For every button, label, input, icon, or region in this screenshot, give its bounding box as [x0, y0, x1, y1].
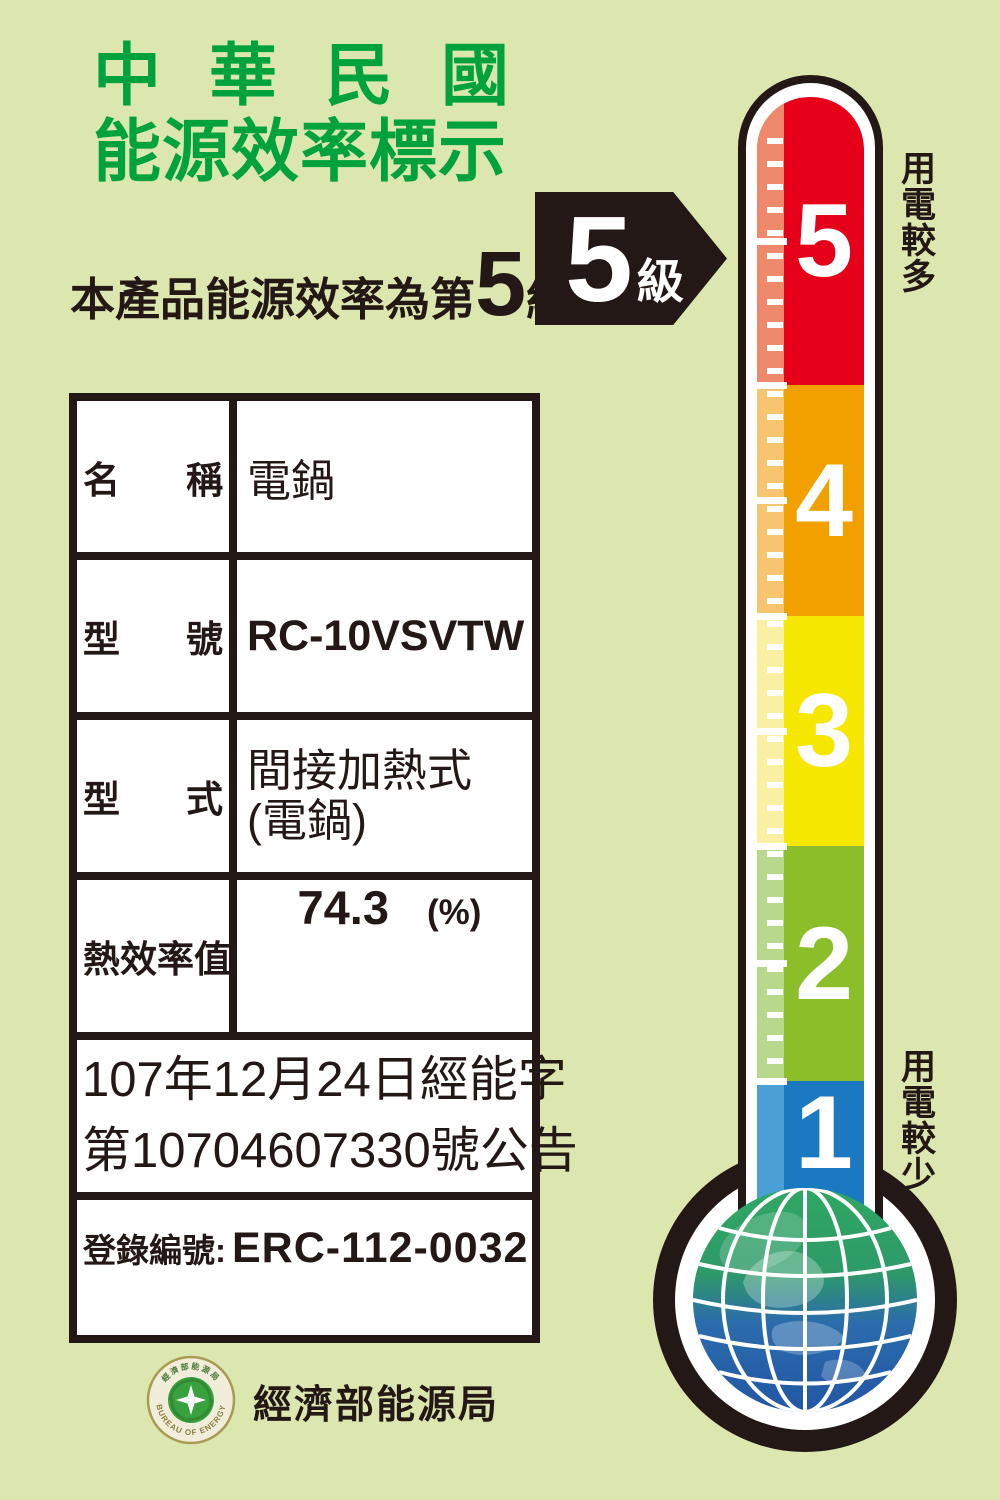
- uses-less-power-label: 用電較少: [897, 1048, 933, 1192]
- model-label: 型 號: [83, 609, 223, 663]
- table-row-model: 型 號 RC-10VSVTW: [77, 560, 532, 720]
- thermo-major-tick: [757, 382, 787, 389]
- thermo-minor-ticks: [767, 138, 783, 1081]
- arrow-level-unit: 級: [637, 258, 684, 305]
- efficiency-label: 熱效率值: [83, 929, 223, 983]
- globe-icon: [693, 1188, 917, 1412]
- table-row-efficiency: 熱效率值 74.3 (%): [77, 880, 532, 1040]
- efficiency-value: 74.3: [298, 880, 389, 935]
- thermometer-tube: 54321: [738, 75, 883, 1235]
- model-number-value: RC-10VSVTW: [247, 612, 524, 661]
- efficiency-unit: (%): [427, 893, 481, 933]
- announcement-cell: 107年12月24日經能字 第10704607330號公告: [77, 1040, 578, 1192]
- row-label-cell: 熱效率值: [77, 880, 237, 1032]
- thermo-major-tick: [757, 960, 787, 967]
- title-line2: 能源效率標示: [93, 114, 557, 190]
- rating-prefix: 本產品能源效率為第: [70, 263, 475, 328]
- row-value-cell: 74.3 (%): [237, 880, 532, 1032]
- product-name-value: 電鍋: [247, 445, 335, 509]
- registration-number: ERC-112-0032: [232, 1224, 528, 1273]
- table-row-name: 名 稱 電鍋: [77, 401, 532, 560]
- type-value-line1: 間接加熱式: [247, 746, 472, 796]
- table-row-registration: 登錄編號: ERC-112-0032: [77, 1200, 532, 1335]
- thermo-level-number-2: 2: [784, 846, 864, 1081]
- row-label-cell: 型 號: [77, 560, 237, 712]
- arrow-level-number: 5: [565, 198, 633, 320]
- thermo-level-number-4: 4: [784, 385, 864, 616]
- agency-name: 經濟部能源局: [253, 1374, 499, 1430]
- label-title: 中華民國 能源效率標示: [93, 38, 557, 190]
- thermo-level-number-3: 3: [784, 616, 864, 846]
- type-value-line2: (電鍋): [247, 796, 367, 846]
- announcement-line1: 107年12月24日經能字: [82, 1045, 578, 1116]
- level-arrow-badge: 5 級: [535, 192, 727, 325]
- thermometer-scale: 54321: [757, 97, 864, 1235]
- type-label: 型 式: [83, 769, 223, 823]
- rating-statement: 本產品能源效率為第 5 級: [70, 243, 571, 328]
- thermo-major-tick: [757, 497, 787, 504]
- row-label-cell: 名 稱: [77, 401, 237, 552]
- row-value-cell: 電鍋: [237, 401, 532, 552]
- table-row-type: 型 式 間接加熱式 (電鍋): [77, 720, 532, 880]
- thermo-major-tick: [757, 1078, 787, 1085]
- thermo-level-number-1: 1: [784, 1077, 864, 1189]
- bureau-of-energy-seal: 經濟部能源局 BUREAU OF ENERGY: [146, 1355, 236, 1445]
- row-value-cell: 間接加熱式 (電鍋): [237, 720, 532, 872]
- thermo-major-tick: [757, 613, 787, 620]
- row-label-cell: 型 式: [77, 720, 237, 872]
- registration-cell: 登錄編號: ERC-112-0032: [77, 1200, 532, 1335]
- table-row-notice: 107年12月24日經能字 第10704607330號公告: [77, 1040, 532, 1200]
- announcement-line2: 第10704607330號公告: [82, 1116, 578, 1187]
- row-value-cell: RC-10VSVTW: [237, 560, 532, 712]
- registration-label: 登錄編號:: [83, 1224, 226, 1272]
- title-line1: 中華民國: [93, 38, 557, 114]
- thermo-major-tick: [757, 728, 787, 735]
- thermo-level-number-5: 5: [784, 97, 864, 385]
- rating-level-number: 5: [475, 243, 526, 326]
- thermo-major-tick: [757, 238, 787, 245]
- thermo-major-tick: [757, 843, 787, 850]
- name-label: 名 稱: [83, 450, 223, 504]
- product-info-table: 名 稱 電鍋 型 號 RC-10VSVTW 型 式 間接加熱式 (電鍋) 熱效率…: [69, 393, 540, 1343]
- uses-more-power-label: 用電較多: [897, 150, 933, 294]
